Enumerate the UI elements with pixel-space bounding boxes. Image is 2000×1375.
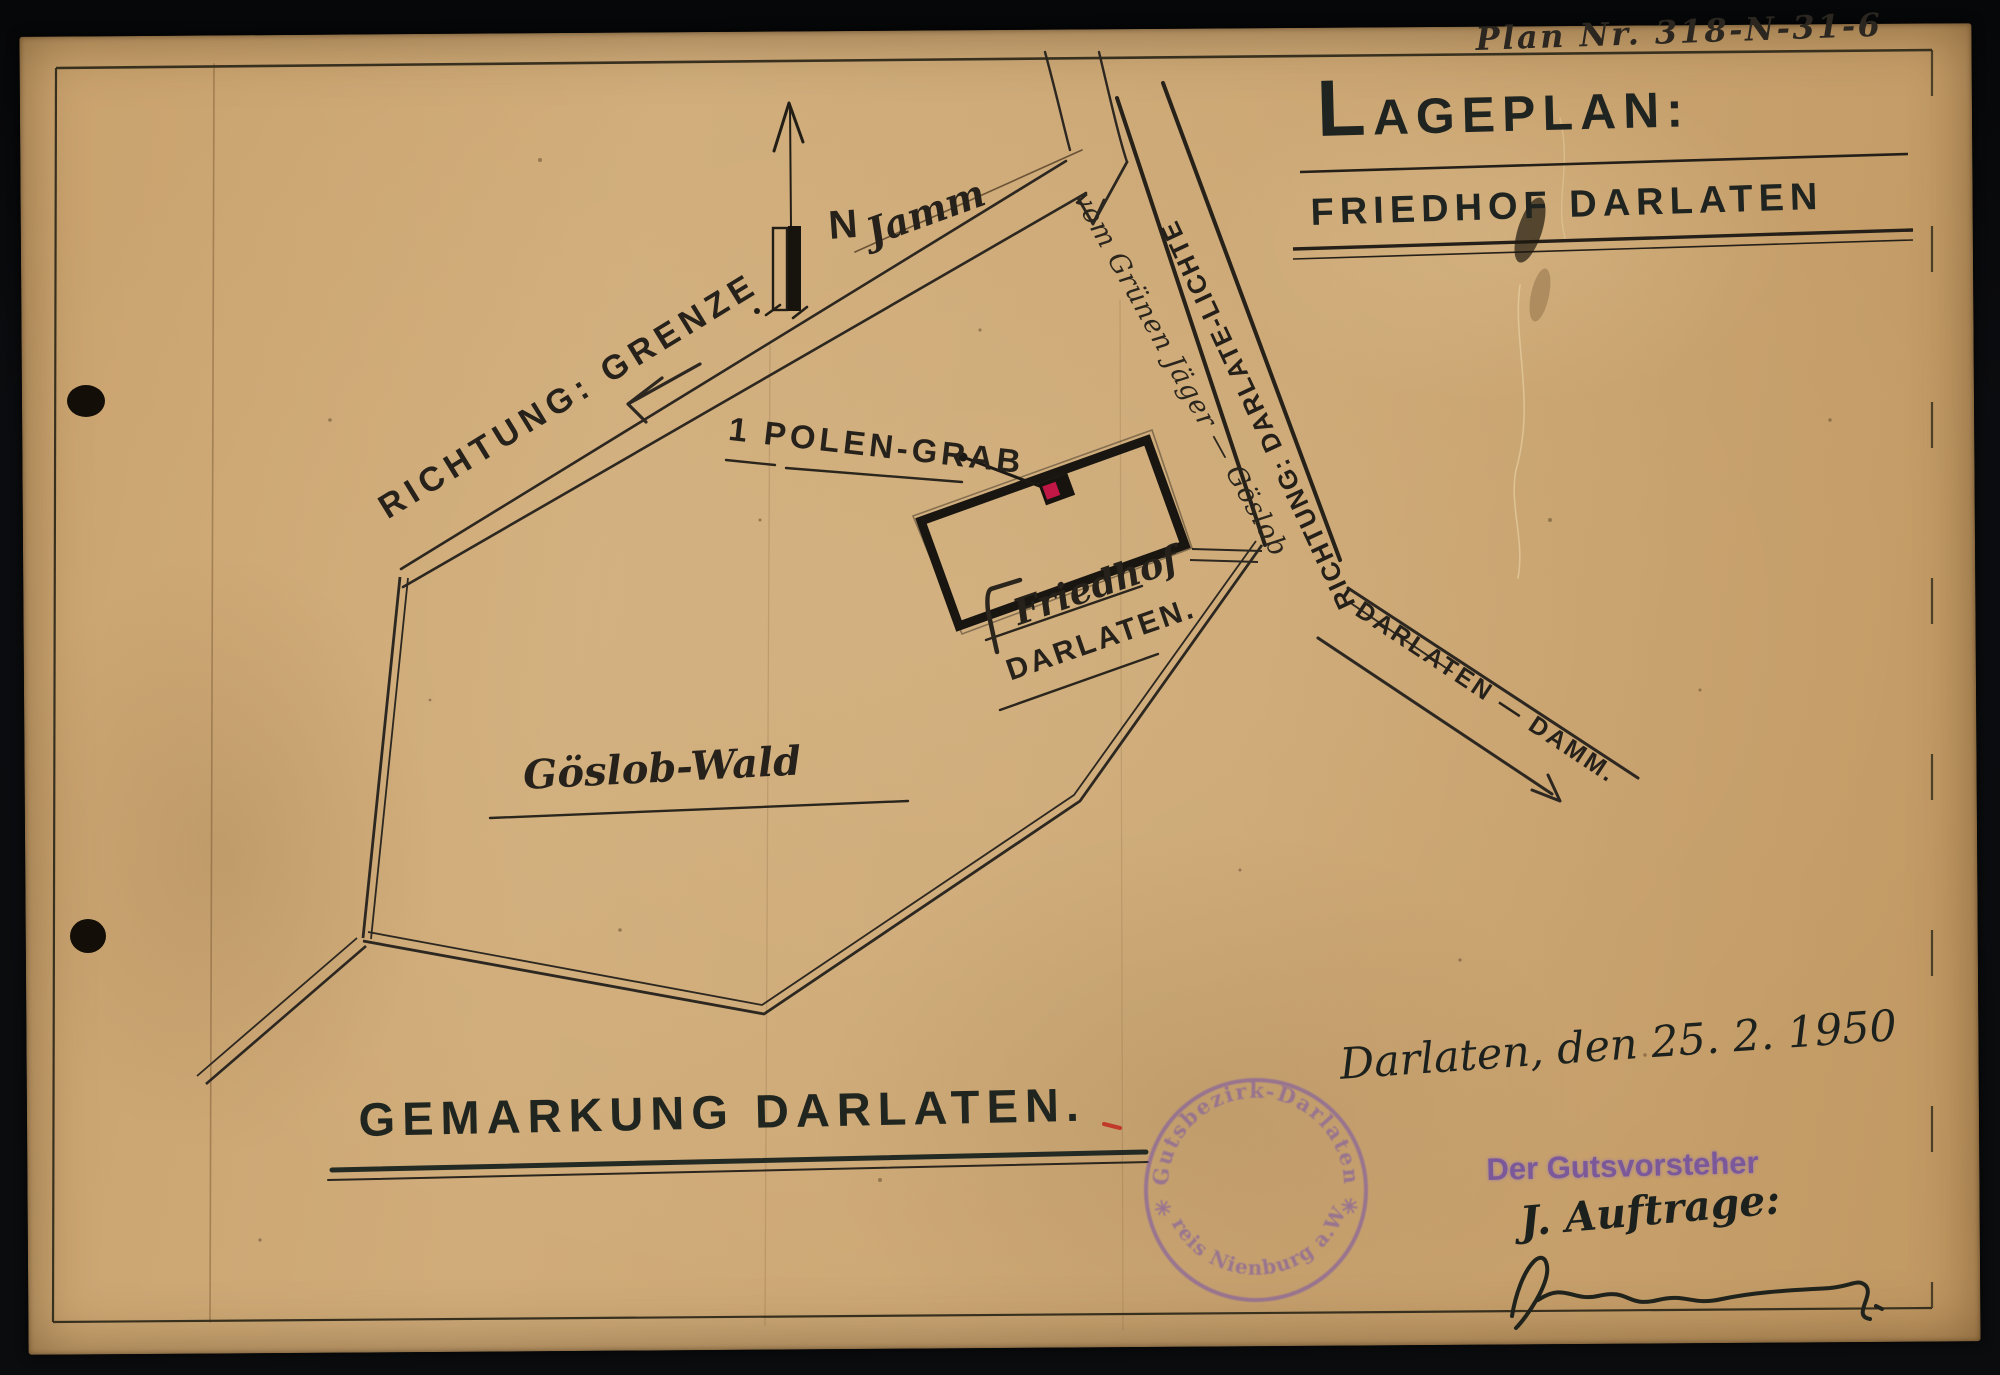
punch-holes xyxy=(67,385,106,953)
road-richtung-grenze xyxy=(401,161,1086,587)
stamp-ring-top-text: ✳ Gutsbezirk-Darlaten ✳ xyxy=(1148,1078,1365,1220)
label-underlines xyxy=(328,460,1158,1180)
svg-text:✳ Gutsbezirk-Darlaten ✳: ✳ Gutsbezirk-Darlaten ✳ xyxy=(1148,1078,1365,1220)
signature xyxy=(1512,1258,1882,1328)
north-letter: N xyxy=(827,202,859,249)
page-title: LAGEPLAN: xyxy=(1316,74,1691,148)
scanned-plan-photo: ✳ Gutsbezirk-Darlaten ✳ Kreis Nienburg a… xyxy=(0,0,2000,1375)
